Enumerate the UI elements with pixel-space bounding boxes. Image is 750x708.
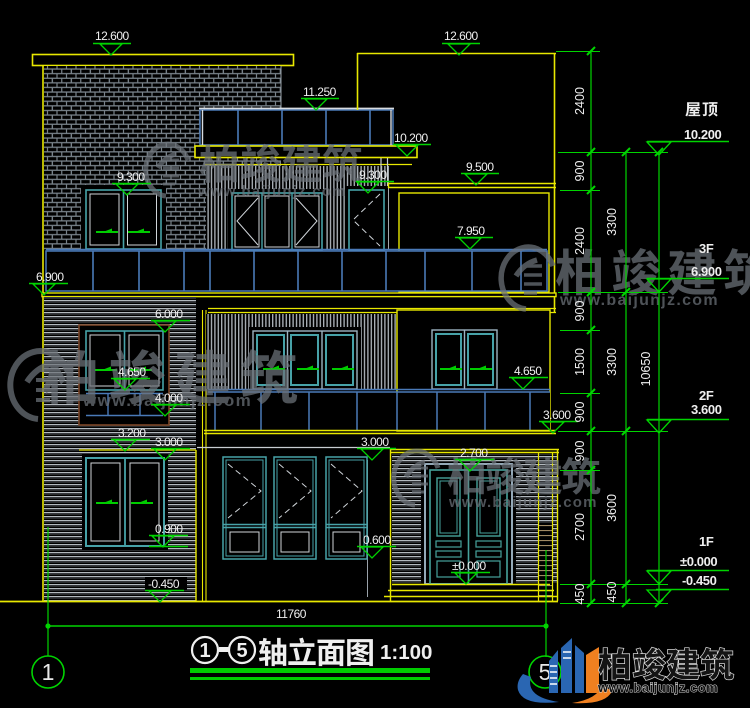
svg-text:450: 450	[573, 584, 587, 605]
svg-text:1: 1	[199, 640, 210, 662]
svg-text:900: 900	[573, 301, 587, 322]
svg-text:6.900: 6.900	[36, 270, 64, 284]
svg-text:12.600: 12.600	[95, 29, 130, 43]
svg-text:900: 900	[573, 402, 587, 423]
svg-text:3300: 3300	[605, 208, 619, 236]
svg-text:4.000: 4.000	[155, 391, 183, 405]
svg-text:900: 900	[573, 441, 587, 462]
svg-text:3.200: 3.200	[118, 426, 146, 440]
svg-text:www.baijunjz.com: www.baijunjz.com	[197, 183, 347, 200]
svg-text:www.baijunjz.com: www.baijunjz.com	[448, 494, 598, 511]
svg-text:6.000: 6.000	[155, 307, 183, 321]
svg-text:2F: 2F	[699, 388, 714, 403]
svg-text:7.950: 7.950	[457, 224, 485, 238]
svg-text:3.600: 3.600	[543, 408, 571, 422]
svg-text:11760: 11760	[276, 607, 307, 621]
svg-text:www.baijunjz.com: www.baijunjz.com	[597, 680, 718, 695]
svg-text:3600: 3600	[605, 494, 619, 522]
svg-text:2400: 2400	[573, 87, 587, 115]
svg-text:4.650: 4.650	[514, 364, 542, 378]
svg-text:1F: 1F	[699, 534, 714, 549]
svg-text:5: 5	[236, 640, 247, 662]
svg-text:±0.000: ±0.000	[452, 559, 486, 573]
svg-text:450: 450	[605, 582, 619, 603]
svg-text:3F: 3F	[699, 241, 714, 256]
svg-text:2700: 2700	[573, 513, 587, 541]
svg-text:10.200: 10.200	[394, 131, 429, 145]
svg-text:3.600: 3.600	[691, 402, 722, 417]
svg-text:3.000: 3.000	[361, 435, 389, 449]
svg-text:12.600: 12.600	[444, 29, 479, 43]
svg-text:9.500: 9.500	[466, 160, 494, 174]
svg-text:9.300: 9.300	[359, 168, 387, 182]
svg-text:1:100: 1:100	[380, 641, 432, 664]
svg-text:1: 1	[42, 659, 55, 685]
svg-text:9.300: 9.300	[117, 170, 145, 184]
svg-text:2.700: 2.700	[460, 446, 488, 460]
svg-text:-0.450: -0.450	[682, 573, 717, 588]
svg-text:0.900: 0.900	[155, 522, 183, 536]
svg-text:0.600: 0.600	[363, 533, 391, 547]
svg-text:4.650: 4.650	[118, 365, 146, 379]
svg-text:3.000: 3.000	[155, 435, 183, 449]
svg-text:1500: 1500	[573, 348, 587, 376]
svg-text:±0.000: ±0.000	[680, 554, 717, 569]
svg-text:6.900: 6.900	[691, 264, 722, 279]
svg-text:2400: 2400	[573, 227, 587, 255]
svg-text:-0.450: -0.450	[148, 577, 180, 591]
svg-text:11.250: 11.250	[303, 85, 337, 99]
svg-text:10.200: 10.200	[684, 127, 722, 142]
svg-text:10650: 10650	[639, 352, 653, 387]
svg-text:900: 900	[573, 161, 587, 182]
svg-text:3300: 3300	[605, 348, 619, 376]
